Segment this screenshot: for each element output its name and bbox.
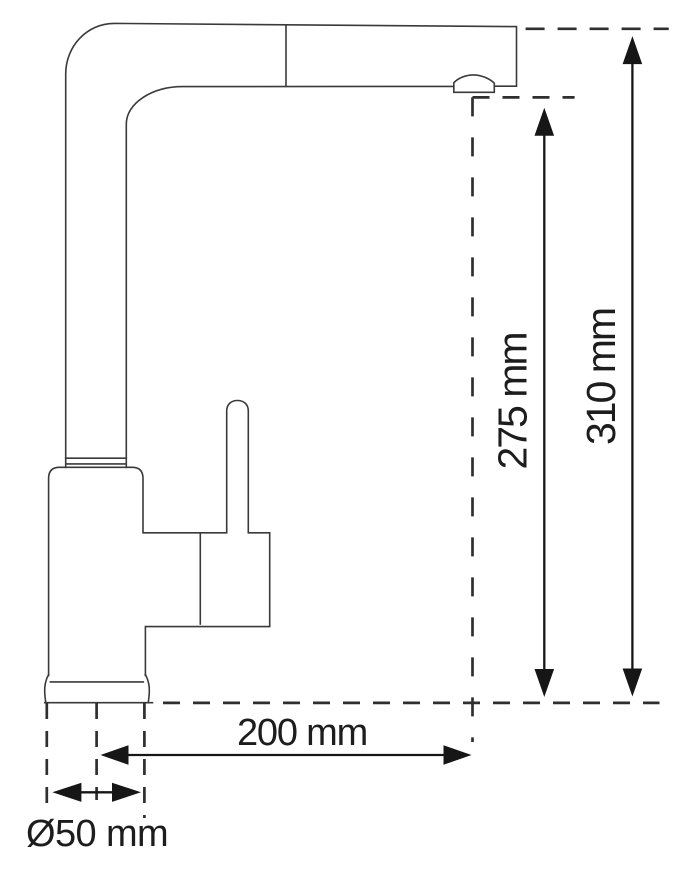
svg-text:Ø50 mm: Ø50 mm bbox=[26, 813, 168, 855]
svg-text:200 mm: 200 mm bbox=[237, 712, 367, 754]
svg-text:275 mm: 275 mm bbox=[490, 333, 536, 469]
svg-text:310 mm: 310 mm bbox=[578, 309, 624, 445]
